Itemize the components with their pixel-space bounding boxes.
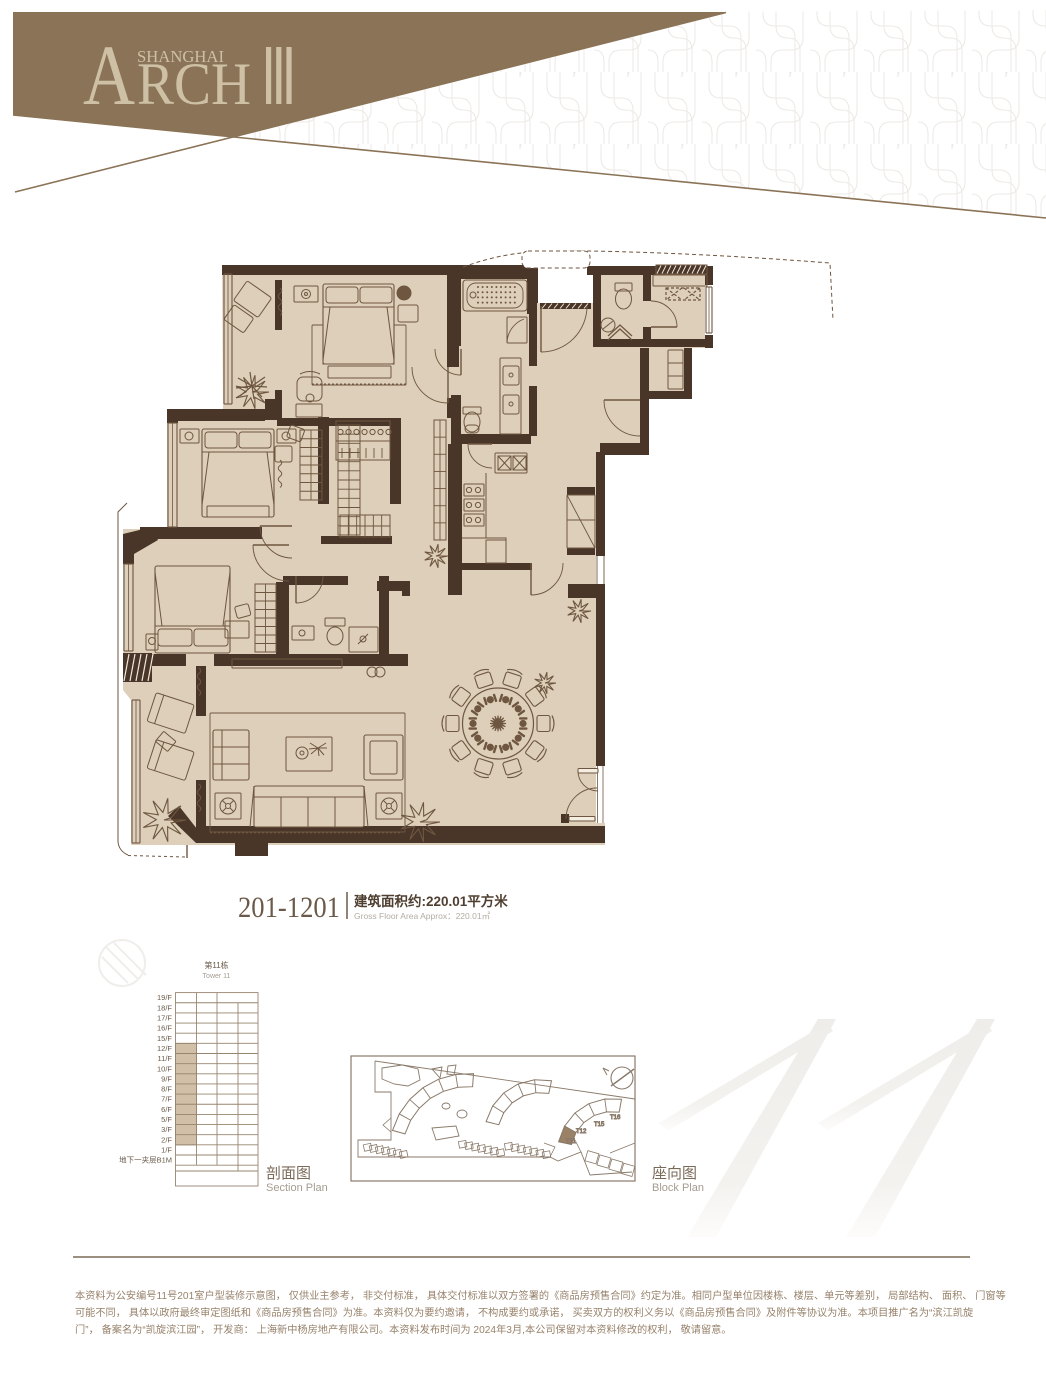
svg-text:A: A bbox=[83, 27, 135, 123]
svg-text:7/F: 7/F bbox=[161, 1095, 172, 1104]
svg-text:可能不同， 具体以政府最终审定图纸和《商品房预售合同》为准。: 可能不同， 具体以政府最终审定图纸和《商品房预售合同》为准。本资料仅为要约邀请，… bbox=[75, 1306, 973, 1319]
svg-text:18/F: 18/F bbox=[157, 1003, 172, 1012]
svg-text:15/F: 15/F bbox=[157, 1034, 172, 1043]
svg-text:2/F: 2/F bbox=[161, 1135, 172, 1144]
svg-text:Block Plan: Block Plan bbox=[652, 1182, 704, 1194]
svg-text:201-1201: 201-1201 bbox=[238, 891, 340, 924]
svg-text:T11: T11 bbox=[566, 1139, 577, 1145]
svg-text:T12: T12 bbox=[576, 1129, 587, 1135]
svg-text:T16: T16 bbox=[610, 1115, 621, 1121]
svg-text:10/F: 10/F bbox=[157, 1064, 172, 1073]
svg-text:11/F: 11/F bbox=[158, 1054, 173, 1063]
svg-text:16/F: 16/F bbox=[157, 1024, 172, 1033]
svg-text:SHANGHAI: SHANGHAI bbox=[137, 47, 224, 66]
svg-text:T15: T15 bbox=[594, 1122, 605, 1128]
svg-text:1/F: 1/F bbox=[161, 1145, 172, 1154]
svg-text:座向图: 座向图 bbox=[652, 1165, 697, 1182]
svg-text:地下一夹层B1M: 地下一夹层B1M bbox=[119, 1155, 172, 1165]
svg-text:第11栋: 第11栋 bbox=[204, 960, 228, 970]
svg-text:17/F: 17/F bbox=[157, 1014, 172, 1023]
svg-text:本资料为公安编号11号201室户型装修示意图， 仅供业主参考: 本资料为公安编号11号201室户型装修示意图， 仅供业主参考， 非交付标准， 具… bbox=[75, 1289, 1006, 1302]
svg-text:Tower 11: Tower 11 bbox=[203, 973, 231, 980]
svg-text:建筑面积约:220.01平方米: 建筑面积约:220.01平方米 bbox=[353, 893, 508, 909]
svg-text:3/F: 3/F bbox=[161, 1125, 172, 1134]
svg-text:12/F: 12/F bbox=[157, 1044, 172, 1053]
svg-text:门”， 备案名为“凯旋滨江园”， 开发商： 上海新中杨房地产: 门”， 备案名为“凯旋滨江园”， 开发商： 上海新中杨房地产有限公司。本资料发布… bbox=[75, 1323, 732, 1336]
svg-text:Gross Floor Area Approx：220.01: Gross Floor Area Approx：220.01㎡ bbox=[354, 911, 491, 921]
svg-text:剖面图: 剖面图 bbox=[266, 1165, 311, 1182]
svg-text:19/F: 19/F bbox=[157, 993, 172, 1002]
svg-text:5/F: 5/F bbox=[161, 1115, 172, 1124]
svg-text:6/F: 6/F bbox=[161, 1105, 172, 1114]
svg-text:9/F: 9/F bbox=[161, 1074, 172, 1083]
svg-text:Section Plan: Section Plan bbox=[266, 1182, 328, 1194]
svg-text:8/F: 8/F bbox=[161, 1085, 172, 1094]
